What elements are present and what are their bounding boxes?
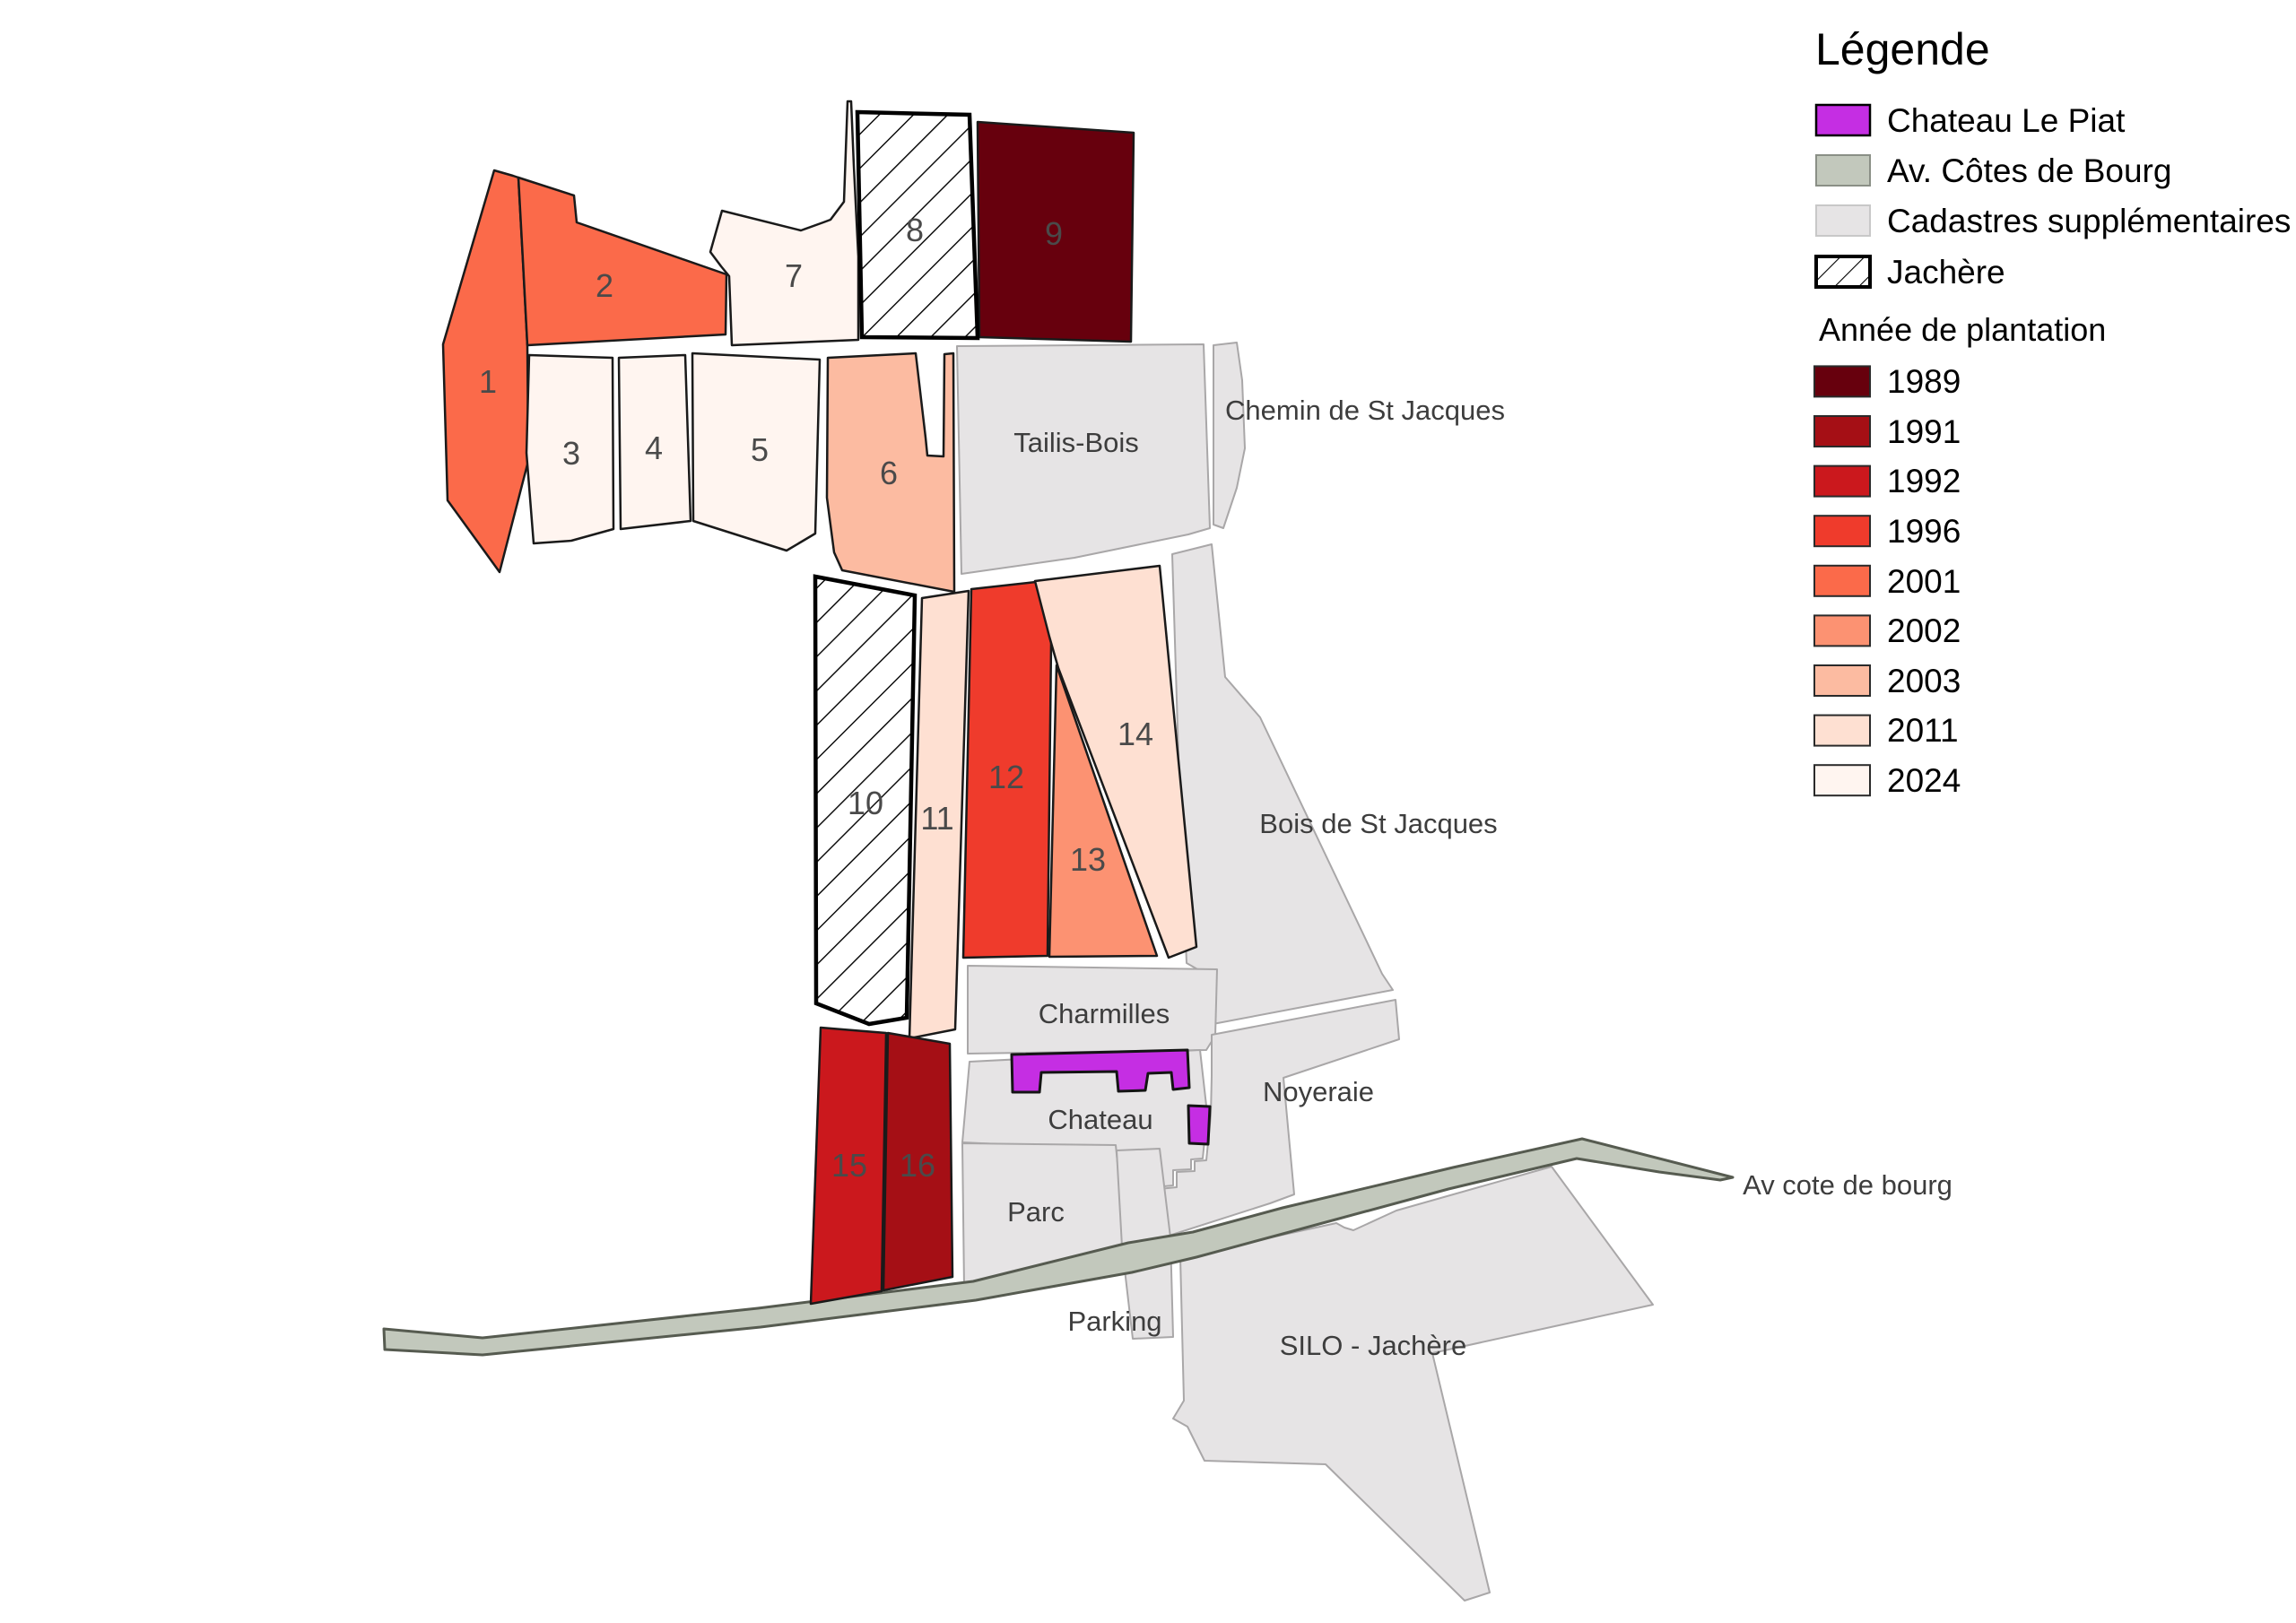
svg-text:2011: 2011: [1887, 712, 1959, 749]
svg-text:Jachère: Jachère: [1887, 254, 2005, 291]
svg-text:2024: 2024: [1887, 762, 1961, 799]
svg-text:8: 8: [906, 212, 924, 248]
svg-text:1989: 1989: [1887, 363, 1961, 400]
svg-text:6: 6: [880, 455, 898, 491]
svg-text:3: 3: [562, 435, 580, 472]
svg-text:SILO - Jachère: SILO - Jachère: [1280, 1330, 1466, 1361]
svg-text:2: 2: [596, 267, 613, 304]
svg-text:Parking: Parking: [1067, 1306, 1161, 1337]
svg-text:9: 9: [1045, 215, 1063, 252]
svg-text:Chateau Le Piat: Chateau Le Piat: [1887, 102, 2126, 139]
svg-text:Parc: Parc: [1007, 1196, 1065, 1228]
svg-text:2001: 2001: [1887, 563, 1961, 600]
svg-text:Noyeraie: Noyeraie: [1263, 1076, 1374, 1107]
svg-text:5: 5: [751, 431, 769, 468]
svg-text:1996: 1996: [1887, 513, 1961, 550]
svg-text:1992: 1992: [1887, 463, 1961, 499]
svg-text:11: 11: [920, 800, 953, 837]
svg-text:7: 7: [785, 257, 803, 294]
svg-text:Cadastres supplémentaires: Cadastres supplémentaires: [1887, 203, 2291, 239]
svg-text:1991: 1991: [1887, 413, 1961, 450]
svg-text:14: 14: [1118, 716, 1153, 752]
svg-text:10: 10: [848, 785, 883, 821]
svg-text:2003: 2003: [1887, 663, 1961, 699]
svg-text:Av. Côtes de Bourg: Av. Côtes de Bourg: [1887, 152, 2171, 189]
svg-text:12: 12: [988, 759, 1024, 795]
svg-text:Charmilles: Charmilles: [1039, 998, 1170, 1029]
svg-text:Chemin de St Jacques: Chemin de St Jacques: [1225, 395, 1505, 426]
svg-text:1: 1: [479, 363, 497, 400]
svg-text:4: 4: [645, 430, 663, 466]
svg-text:13: 13: [1070, 841, 1106, 878]
svg-text:15: 15: [831, 1147, 867, 1184]
svg-text:Bois de St Jacques: Bois de St Jacques: [1259, 808, 1497, 839]
svg-text:Année de plantation: Année de plantation: [1819, 311, 2106, 348]
svg-text:Tailis-Bois: Tailis-Bois: [1013, 427, 1139, 458]
svg-text:Chateau: Chateau: [1048, 1104, 1152, 1135]
svg-text:Av cote de bourg: Av cote de bourg: [1743, 1169, 1952, 1201]
svg-text:Légende: Légende: [1815, 24, 1990, 74]
svg-text:16: 16: [900, 1147, 935, 1184]
svg-text:2002: 2002: [1887, 612, 1961, 649]
